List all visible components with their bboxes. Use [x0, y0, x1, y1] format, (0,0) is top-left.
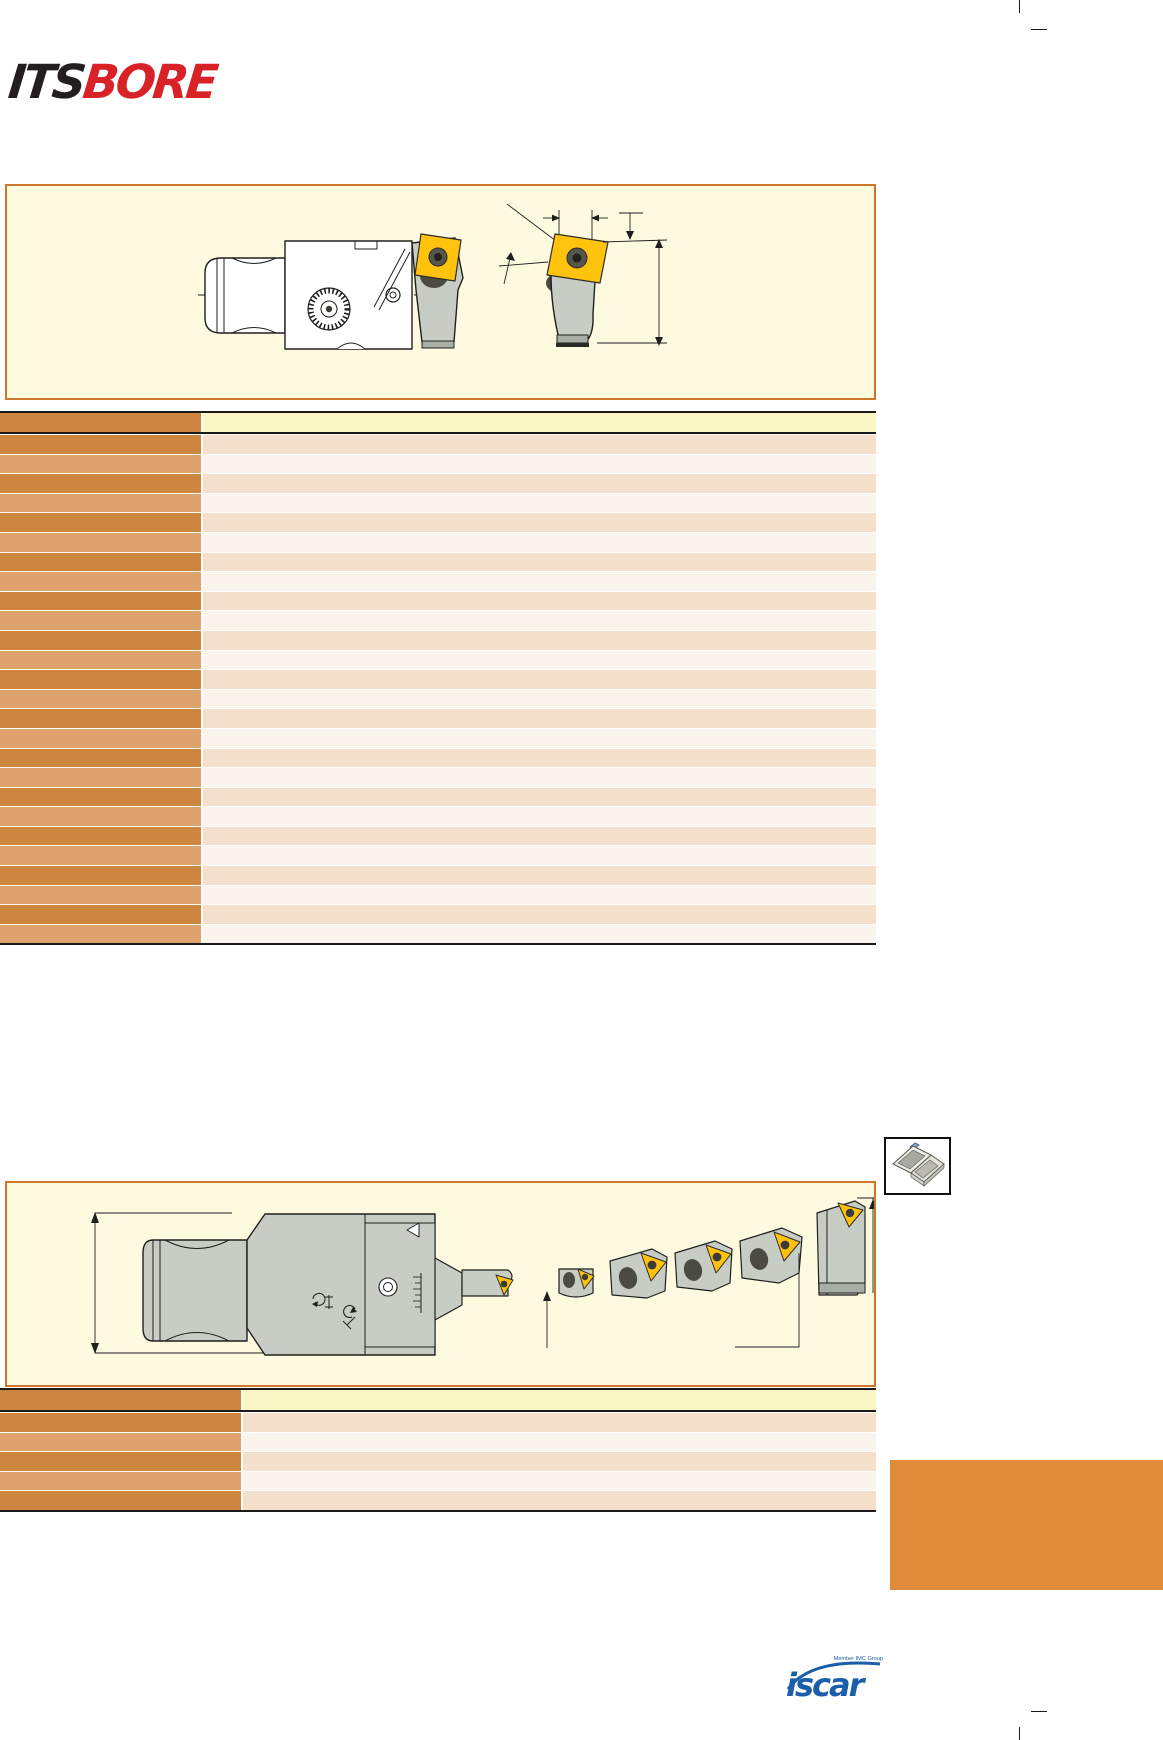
header-label-cell	[0, 1390, 241, 1410]
row-label-cell	[0, 690, 201, 709]
row-value-cell	[203, 925, 876, 944]
table-row	[0, 1491, 876, 1510]
row-value-cell	[203, 827, 876, 846]
logo-text-its: ITS	[6, 55, 86, 110]
member-imc-text: Member IMC Group	[834, 1656, 883, 1662]
crop-mark-bottom-vertical	[1019, 1727, 1020, 1740]
row-label-cell	[0, 651, 201, 670]
page-accent-block	[890, 1460, 1163, 1590]
insert-case-icon	[884, 1137, 951, 1195]
boring-head-panel-figure	[7, 1183, 874, 1385]
row-value-cell	[203, 474, 876, 493]
row-label-cell	[0, 670, 201, 689]
row-label-cell	[0, 592, 201, 611]
table-row	[0, 768, 876, 787]
row-value-cell	[203, 513, 876, 532]
row-value-cell	[203, 807, 876, 826]
table-row	[0, 709, 876, 728]
row-label-cell	[0, 1433, 241, 1452]
table-row	[0, 455, 876, 474]
iscar-wordmark: iscar	[786, 1666, 867, 1702]
row-value-cell	[203, 533, 876, 552]
row-value-cell	[203, 631, 876, 650]
crop-mark-top-horizontal	[1031, 29, 1047, 30]
row-value-cell	[203, 592, 876, 611]
table-row	[0, 592, 876, 611]
row-value-cell	[243, 1472, 876, 1491]
row-value-cell	[203, 651, 876, 670]
row-label-cell	[0, 925, 201, 944]
row-label-cell	[0, 866, 201, 885]
row-label-cell	[0, 455, 201, 474]
table-row	[0, 651, 876, 670]
cartridge-panel-figure	[7, 186, 874, 398]
cartridge-spec-table	[0, 411, 876, 945]
table-row	[0, 553, 876, 572]
row-label-cell	[0, 494, 201, 513]
row-label-cell	[0, 1472, 241, 1491]
cartridge-detail-drawing	[499, 204, 667, 347]
table-header-row	[0, 1390, 876, 1412]
itsbore-logo: ITSBORE	[6, 62, 217, 108]
row-label-cell	[0, 553, 201, 572]
table-row	[0, 435, 876, 454]
row-label-cell	[0, 749, 201, 768]
table-row	[0, 631, 876, 650]
table-row	[0, 670, 876, 689]
row-label-cell	[0, 827, 201, 846]
row-label-cell	[0, 572, 201, 591]
header-value-cell	[243, 1390, 876, 1410]
iscar-logo: Member IMC Group iscar	[785, 1652, 885, 1702]
row-value-cell	[203, 729, 876, 748]
row-value-cell	[203, 905, 876, 924]
crop-mark-top-vertical	[1019, 0, 1020, 13]
row-label-cell	[0, 788, 201, 807]
row-value-cell	[243, 1413, 876, 1432]
row-label-cell	[0, 631, 201, 650]
table-row	[0, 572, 876, 591]
head-spec-table	[0, 1388, 876, 1512]
row-label-cell	[0, 729, 201, 748]
table-row	[0, 533, 876, 552]
row-value-cell	[203, 690, 876, 709]
table-row	[0, 690, 876, 709]
row-label-cell	[0, 1452, 241, 1471]
row-value-cell	[203, 553, 876, 572]
table-row	[0, 886, 876, 905]
table-header-row	[0, 413, 876, 434]
row-value-cell	[203, 611, 876, 630]
header-label-cell	[0, 413, 201, 432]
crop-mark-bottom-horizontal	[1031, 1711, 1047, 1712]
row-value-cell	[243, 1452, 876, 1471]
cartridge-series-drawing	[559, 1198, 874, 1347]
row-label-cell	[0, 709, 201, 728]
table-row	[0, 474, 876, 493]
table-row	[0, 866, 876, 885]
table-row	[0, 611, 876, 630]
table-row	[0, 513, 876, 532]
table-row	[0, 827, 876, 846]
row-label-cell	[0, 886, 201, 905]
row-label-cell	[0, 807, 201, 826]
table-row	[0, 846, 876, 865]
table-row	[0, 807, 876, 826]
row-value-cell	[203, 435, 876, 454]
row-value-cell	[203, 572, 876, 591]
table-row	[0, 749, 876, 768]
row-value-cell	[243, 1491, 876, 1510]
row-value-cell	[203, 886, 876, 905]
row-label-cell	[0, 611, 201, 630]
table-row	[0, 925, 876, 944]
row-label-cell	[0, 474, 201, 493]
table-row	[0, 494, 876, 513]
table-row	[0, 1433, 876, 1452]
row-label-cell	[0, 1413, 241, 1432]
table-row	[0, 788, 876, 807]
row-value-cell	[203, 709, 876, 728]
table-row	[0, 1452, 876, 1471]
row-value-cell	[203, 788, 876, 807]
table-row	[0, 905, 876, 924]
open-case-drawing	[886, 1139, 949, 1193]
row-value-cell	[203, 749, 876, 768]
row-label-cell	[0, 1491, 241, 1510]
row-value-cell	[203, 866, 876, 885]
table-row	[0, 1413, 876, 1432]
cartridge-drawing-panel	[5, 184, 876, 400]
row-value-cell	[203, 455, 876, 474]
row-value-cell	[203, 768, 876, 787]
boring-head-assembly-drawing	[198, 234, 463, 349]
table-row	[0, 1472, 876, 1491]
row-label-cell	[0, 905, 201, 924]
modular-boring-head-drawing	[143, 1214, 551, 1355]
row-value-cell	[203, 670, 876, 689]
row-value-cell	[203, 846, 876, 865]
row-label-cell	[0, 846, 201, 865]
row-label-cell	[0, 435, 201, 454]
boring-head-drawing-panel	[5, 1181, 876, 1387]
row-label-cell	[0, 533, 201, 552]
row-value-cell	[203, 494, 876, 513]
table-row	[0, 729, 876, 748]
row-label-cell	[0, 513, 201, 532]
row-value-cell	[243, 1433, 876, 1452]
header-value-cell	[203, 413, 876, 432]
row-label-cell	[0, 768, 201, 787]
logo-text-bore: BORE	[80, 55, 218, 110]
